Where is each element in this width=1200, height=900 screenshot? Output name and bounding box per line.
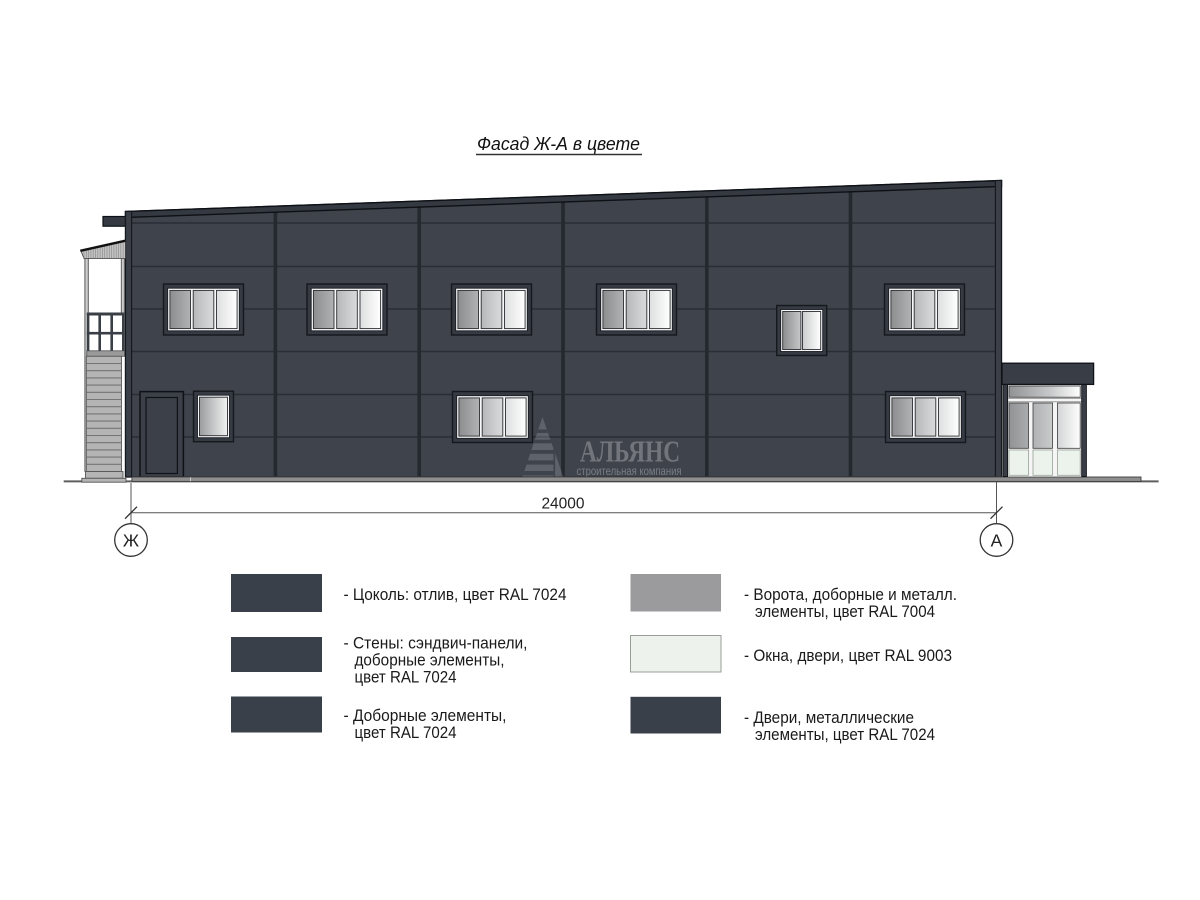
svg-text:доборные элементы,: доборные элементы, bbox=[355, 652, 505, 670]
svg-text:- Ворота, доборные и металл.: - Ворота, доборные и металл. bbox=[744, 586, 957, 604]
svg-text:- Двери, металлические: - Двери, металлические bbox=[744, 709, 914, 727]
svg-text:элементы, цвет RAL 7024: элементы, цвет RAL 7024 bbox=[755, 726, 935, 744]
svg-text:- Окна, двери, цвет RAL 9003: - Окна, двери, цвет RAL 9003 bbox=[744, 647, 952, 665]
svg-text:- Цоколь: отлив, цвет RAL 7024: - Цоколь: отлив, цвет RAL 7024 bbox=[344, 586, 567, 604]
svg-text:цвет RAL 7024: цвет RAL 7024 bbox=[355, 669, 457, 687]
svg-text:- Доборные элементы,: - Доборные элементы, bbox=[344, 707, 507, 725]
svg-text:элементы, цвет RAL 7004: элементы, цвет RAL 7004 bbox=[755, 603, 935, 621]
svg-text:А: А bbox=[991, 530, 1003, 550]
svg-text:цвет RAL 7024: цвет RAL 7024 bbox=[355, 724, 457, 742]
svg-text:Фасад Ж-А в цвете: Фасад Ж-А в цвете bbox=[477, 133, 640, 154]
svg-text:- Стены: сэндвич-панели,: - Стены: сэндвич-панели, bbox=[344, 635, 528, 653]
svg-text:24000: 24000 bbox=[541, 496, 584, 513]
svg-text:Ж: Ж bbox=[123, 530, 139, 550]
svg-text:АЛЬЯНС: АЛЬЯНС bbox=[580, 434, 680, 469]
svg-text:строительная компания: строительная компания bbox=[577, 466, 682, 478]
